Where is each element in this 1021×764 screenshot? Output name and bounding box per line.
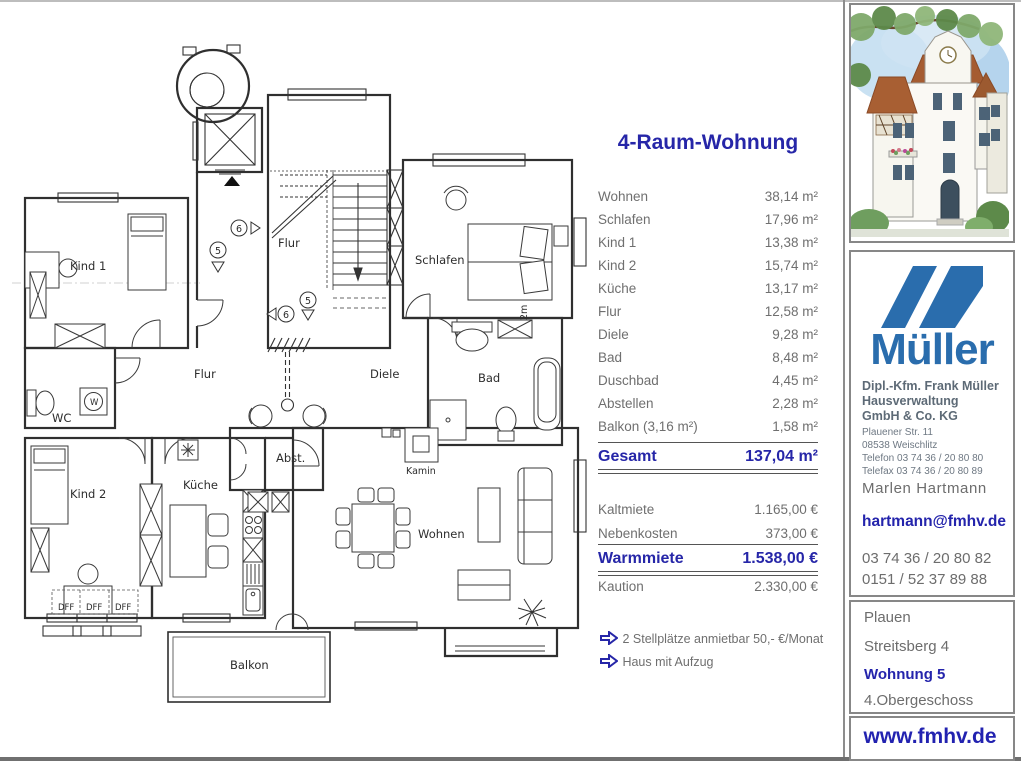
bedroom-furniture	[444, 186, 568, 300]
mueller-logo: Müller	[857, 260, 1007, 372]
column-divider	[843, 0, 845, 757]
contact-name: Marlen Hartmann	[862, 480, 987, 497]
room-row: Flur12,58 m²	[598, 304, 818, 321]
contact-phone: 03 74 36 / 20 80 82	[862, 550, 991, 567]
dim-label-2m: 2m	[519, 305, 530, 320]
website-box: www.fmhv.de	[849, 716, 1015, 761]
exposé-page: Flur Kind 1 Schlafen WC W Flur Diele Bad…	[0, 0, 1021, 764]
elevator-icon	[193, 114, 255, 174]
page-title: 4-Raum-Wohnung	[598, 131, 818, 155]
cost-row: Nebenkosten373,00 €	[598, 526, 818, 543]
room-label-kind2: Kind 2	[70, 487, 106, 501]
arrow-right-icon	[600, 631, 618, 645]
company-detail-line: Telefax 03 74 36 / 20 80 89	[862, 465, 1012, 478]
address-city: Plauen	[864, 609, 911, 626]
dff-label-1: DFF	[58, 603, 74, 613]
room-row: Diele9,28 m²	[598, 327, 818, 344]
room-row: Abstellen2,28 m²	[598, 396, 818, 413]
window-symbols	[43, 89, 586, 651]
plan-walls	[25, 50, 578, 656]
kitchen-furniture	[170, 440, 263, 615]
cost-row: Kaltmiete1.165,00 €	[598, 502, 818, 519]
room-label-wc: WC	[52, 411, 71, 425]
marker-6b: 6	[283, 310, 289, 321]
note-row: Haus mit Aufzug	[600, 653, 713, 671]
arrow-right-icon	[600, 654, 618, 668]
room-row: Bad8,48 m²	[598, 350, 818, 367]
contact-email-link[interactable]: hartmann@fmhv.de	[862, 513, 1006, 531]
north-triangle	[224, 176, 240, 186]
company-name-line: Dipl.-Kfm. Frank Müller	[862, 379, 1007, 394]
storage-piers	[248, 492, 289, 512]
total-rule-top	[598, 442, 818, 443]
marker-5b: 5	[305, 296, 311, 307]
fireplace-icon	[382, 428, 438, 462]
contact-mobile: 0151 / 52 37 89 88	[862, 571, 987, 588]
address-street: Streitsberg 4	[864, 638, 949, 655]
position-markers	[210, 220, 316, 322]
room-row: Kind 215,74 m²	[598, 258, 818, 275]
room-row: Küche13,17 m²	[598, 281, 818, 298]
room-label-hall: Flur	[194, 367, 216, 381]
marker-5a: 5	[215, 246, 221, 257]
company-detail-line: Telefon 03 74 36 / 20 80 80	[862, 452, 1012, 465]
room-row: Balkon (3,16 m²)1,58 m²	[598, 419, 818, 436]
warm-rule-bottom2	[598, 575, 818, 576]
room-label-diele: Diele	[370, 367, 399, 381]
company-name-line: GmbH & Co. KG	[862, 409, 1007, 424]
dff-label-2: DFF	[86, 603, 102, 613]
room-row: Kind 113,38 m²	[598, 235, 818, 252]
house-illustration-box	[849, 3, 1015, 243]
marker-6a: 6	[236, 224, 242, 235]
dff-label-3: DFF	[115, 603, 131, 613]
house-illustration	[851, 5, 1009, 237]
company-detail-line: 08538 Weischlitz	[862, 439, 1012, 452]
warm-rent-row: Warmmiete1.538,00 €	[598, 550, 818, 568]
warm-rule-top	[598, 544, 818, 545]
living-furniture	[336, 468, 552, 626]
logo-wordmark: Müller	[870, 325, 994, 372]
room-row: Duschbad4,45 m²	[598, 373, 818, 390]
room-row: Schlafen17,96 m²	[598, 212, 818, 229]
floor-plan: Flur Kind 1 Schlafen WC W Flur Diele Bad…	[0, 0, 595, 710]
room-label-kind1: Kind 1	[70, 259, 106, 273]
washer-label: W	[90, 398, 99, 408]
website-link[interactable]: www.fmhv.de	[851, 718, 1009, 756]
kind2-furniture	[31, 446, 162, 614]
room-label-schlafen: Schlafen	[415, 253, 465, 267]
company-box: Müller Dipl.-Kfm. Frank Müller Hausverwa…	[849, 250, 1015, 597]
room-row: Wohnen38,14 m²	[598, 189, 818, 206]
kind1-furniture	[25, 214, 166, 348]
total-row: Gesamt137,04 m²	[598, 448, 818, 466]
address-unit: Wohnung 5	[864, 666, 945, 683]
room-label-kamin: Kamin	[406, 466, 436, 477]
total-rule-bottom1	[598, 469, 818, 470]
room-label-stair-hall: Flur	[278, 236, 300, 250]
property-address-box: Plauen Streitsberg 4 Wohnung 5 4.Oberges…	[849, 600, 1015, 714]
room-label-kueche: Küche	[183, 478, 218, 492]
address-floor: 4.Obergeschoss	[864, 692, 973, 709]
deposit-row: Kaution2.330,00 €	[598, 579, 818, 596]
warm-rule-bottom1	[598, 571, 818, 572]
room-label-wohnen: Wohnen	[418, 527, 465, 541]
company-name-line: Hausverwaltung	[862, 394, 1007, 409]
room-label-balkon: Balkon	[230, 658, 269, 672]
total-rule-bottom2	[598, 473, 818, 474]
company-detail-line: Plauener Str. 11	[862, 426, 1012, 439]
room-label-abst: Abst.	[276, 451, 305, 465]
room-label-bad: Bad	[478, 371, 500, 385]
note-row: 2 Stellplätze anmietbar 50,- €/Monat	[600, 630, 823, 648]
